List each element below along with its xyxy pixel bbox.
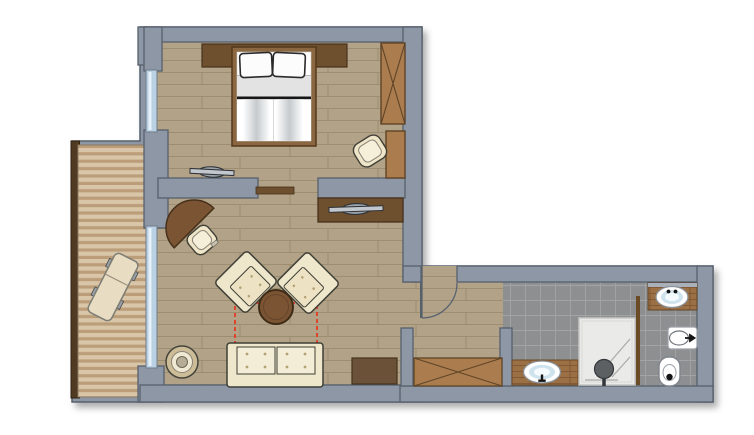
sofa-cushion-left	[237, 347, 275, 374]
wall-divider-right	[318, 178, 405, 198]
floor-plan-canvas	[0, 0, 754, 435]
wall-wing-right	[697, 266, 713, 402]
washbasin	[524, 361, 561, 383]
pillow-left	[239, 52, 272, 77]
wall-entry-arm	[403, 266, 421, 282]
washbasin-2	[656, 287, 688, 308]
tall-cabinet	[386, 131, 405, 178]
wall-divider-left	[158, 178, 258, 198]
sofa-cushion-right	[277, 347, 315, 374]
wall-right-main	[403, 27, 422, 282]
wall-top	[144, 27, 422, 42]
pillow-right	[272, 52, 305, 77]
toilet	[659, 357, 680, 386]
double-bed	[232, 47, 316, 146]
duvet-shade-left	[243, 99, 270, 141]
wall-wing-bottom	[400, 386, 713, 402]
wall-wing-top	[457, 266, 699, 282]
round-side-table	[166, 346, 198, 378]
sliding-door	[256, 187, 294, 194]
shower	[579, 318, 635, 386]
living-window-glare	[149, 228, 152, 366]
wall-left-upper	[144, 27, 162, 71]
bed-fold-line	[237, 97, 311, 100]
bedroom-window-glare	[149, 72, 152, 130]
toilet-drain-icon	[666, 374, 672, 380]
floor-plan	[0, 0, 754, 435]
bidet	[668, 327, 697, 349]
coffee-table	[259, 290, 293, 324]
sofa-bed	[227, 343, 323, 387]
bed-sheet-band	[237, 75, 311, 97]
storage-cabinet	[352, 358, 397, 384]
wall-stub-hall-left	[401, 328, 413, 386]
entrance-door-leaf	[420, 282, 423, 318]
partition-post	[636, 296, 640, 385]
shower-head-icon	[595, 360, 614, 379]
duvet-shade-right	[276, 99, 303, 141]
